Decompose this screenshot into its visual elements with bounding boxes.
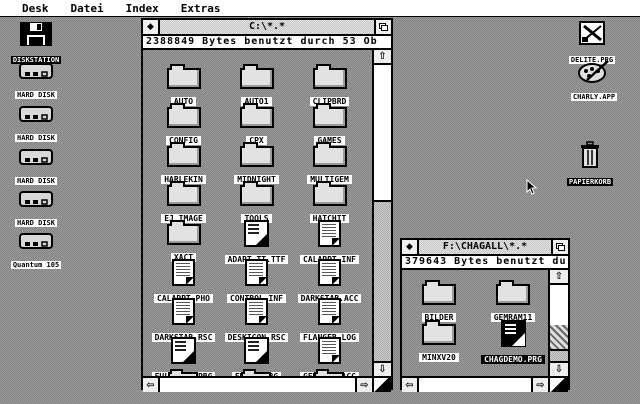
drive-icon-hard-disk-4[interactable]: HARD DISK (4, 190, 68, 229)
menu-item-datei[interactable]: Datei (71, 2, 104, 15)
folder-icon (167, 107, 201, 128)
hscroll-thumb[interactable] (419, 378, 531, 392)
scroll-left-icon[interactable]: ⇦ (143, 378, 160, 392)
program-file-icon (244, 337, 269, 364)
drive-icon-hard-disk-1[interactable]: HARD DISK (4, 62, 68, 101)
scroll-up-icon[interactable]: ⇧ (550, 270, 568, 285)
vscroll-hatch (550, 325, 568, 351)
folder-icon (167, 146, 201, 167)
folder-icon (240, 107, 274, 128)
drive-icon-hard-disk-2[interactable]: HARD DISK (4, 105, 68, 144)
menu-item-desk[interactable]: Desk (22, 2, 49, 15)
folder-icon (313, 185, 347, 206)
fuller-icon[interactable] (551, 240, 568, 254)
fuller-icon[interactable] (374, 20, 391, 34)
document-icon (318, 220, 341, 247)
folder-icon (240, 68, 274, 89)
file-item[interactable]: FULLSCRN.PRG (150, 337, 217, 376)
desktop: Desk Datei Index Extras DISKSTATION HARD… (0, 0, 640, 404)
folder-icon (167, 68, 201, 89)
window-c-vscrollbar[interactable]: ⇧ ⇩ (372, 50, 391, 376)
window-f: ◆ F:\CHAGALL\*.* 379643 Bytes benutzt du… (400, 238, 570, 390)
file-item[interactable]: GEMVIEW.ACC (296, 337, 363, 376)
scroll-right-icon[interactable]: ⇨ (531, 378, 548, 392)
window-f-content: BILDER GEMRAM11 MINXV20 CHAGDEMO.PRG (402, 270, 550, 376)
menu-item-index[interactable]: Index (126, 2, 159, 15)
document-icon (318, 298, 341, 325)
hard-disk-icon (18, 105, 54, 125)
window-f-title: F:\CHAGALL\*.* (419, 240, 551, 254)
scroll-up-icon[interactable]: ⇧ (374, 50, 391, 65)
folder-icon (422, 284, 456, 305)
folder-icon (496, 284, 530, 305)
folder-icon (422, 324, 456, 345)
folder-item[interactable]: MINXV20 (403, 318, 475, 364)
folder-item[interactable]: TOOLS (223, 179, 290, 225)
program-file-icon (501, 320, 526, 347)
program-file-icon (171, 337, 196, 364)
window-c: ◆ C:\*.* 2388849 Bytes benutzt durch 53 … (141, 18, 393, 390)
folder-item[interactable]: HATCHIT (296, 179, 363, 225)
folder-icon (313, 68, 347, 89)
program-file-icon (244, 220, 269, 247)
folder-icon (313, 107, 347, 128)
folder-icon (167, 224, 201, 245)
window-f-titlebar[interactable]: ◆ F:\CHAGALL\*.* (402, 240, 568, 256)
file-item[interactable]: FULLX.PRG (223, 337, 290, 376)
folder-icon (167, 185, 201, 206)
window-f-vscrollbar[interactable]: ⇧ ⇩ (548, 270, 568, 376)
document-icon (172, 259, 195, 286)
folder-icon (240, 146, 274, 167)
hard-disk-icon (18, 232, 54, 252)
window-c-titlebar[interactable]: ◆ C:\*.* (143, 20, 391, 36)
close-icon[interactable]: ◆ (402, 240, 419, 254)
document-icon (172, 298, 195, 325)
scroll-right-icon[interactable]: ⇨ (355, 378, 372, 392)
window-c-content: AUTO AUTO1 CLIPBRD CONFIG CPX GAMES HARL… (143, 50, 374, 376)
document-icon (318, 259, 341, 286)
menu-bar: Desk Datei Index Extras (0, 0, 640, 17)
file-item-selected[interactable]: CHAGDEMO.PRG (477, 320, 549, 366)
folder-item[interactable]: XACT (150, 218, 217, 264)
drive-icon-quantum-105[interactable]: Quantum 105 (4, 232, 68, 271)
paint-palette-icon (577, 58, 611, 84)
window-c-hscrollbar[interactable]: ⇦ ⇨ (143, 376, 372, 392)
close-icon[interactable]: ◆ (143, 20, 160, 34)
hscroll-thumb[interactable] (160, 378, 355, 392)
desktop-icon-charly[interactable]: CHARLY.APP (562, 58, 626, 103)
trash-can-icon (577, 141, 603, 169)
hard-disk-icon (18, 62, 54, 82)
hard-disk-icon (18, 190, 54, 210)
drive-icon-hard-disk-3[interactable]: HARD DISK (4, 148, 68, 187)
picture-pencils-icon (577, 20, 607, 47)
window-c-info: 2388849 Bytes benutzt durch 53 Ob (143, 36, 391, 50)
folder-item[interactable]: GEMRAM11 (477, 278, 549, 324)
resize-handle[interactable] (548, 376, 568, 392)
scroll-left-icon[interactable]: ⇦ (402, 378, 419, 392)
window-f-info: 379643 Bytes benutzt du (402, 256, 568, 270)
mouse-cursor-icon (526, 179, 538, 195)
scroll-down-icon[interactable]: ⇩ (374, 361, 391, 376)
document-icon (318, 337, 341, 364)
folder-icon (313, 146, 347, 167)
scroll-down-icon[interactable]: ⇩ (550, 361, 568, 376)
hard-disk-icon (18, 148, 54, 168)
resize-handle[interactable] (372, 376, 391, 392)
document-icon (245, 298, 268, 325)
vscroll-thumb[interactable] (374, 65, 391, 202)
document-icon (245, 259, 268, 286)
trash-icon-papierkorb[interactable]: PAPIERKORB (558, 141, 622, 188)
window-c-title: C:\*.* (160, 20, 374, 34)
drive-icon-diskstation[interactable]: DISKSTATION (4, 21, 68, 66)
window-f-hscrollbar[interactable]: ⇦ ⇨ (402, 376, 548, 392)
menu-item-extras[interactable]: Extras (181, 2, 221, 15)
folder-icon (240, 185, 274, 206)
floppy-disk-icon (19, 21, 53, 47)
vscroll-thumb[interactable] (550, 285, 568, 327)
